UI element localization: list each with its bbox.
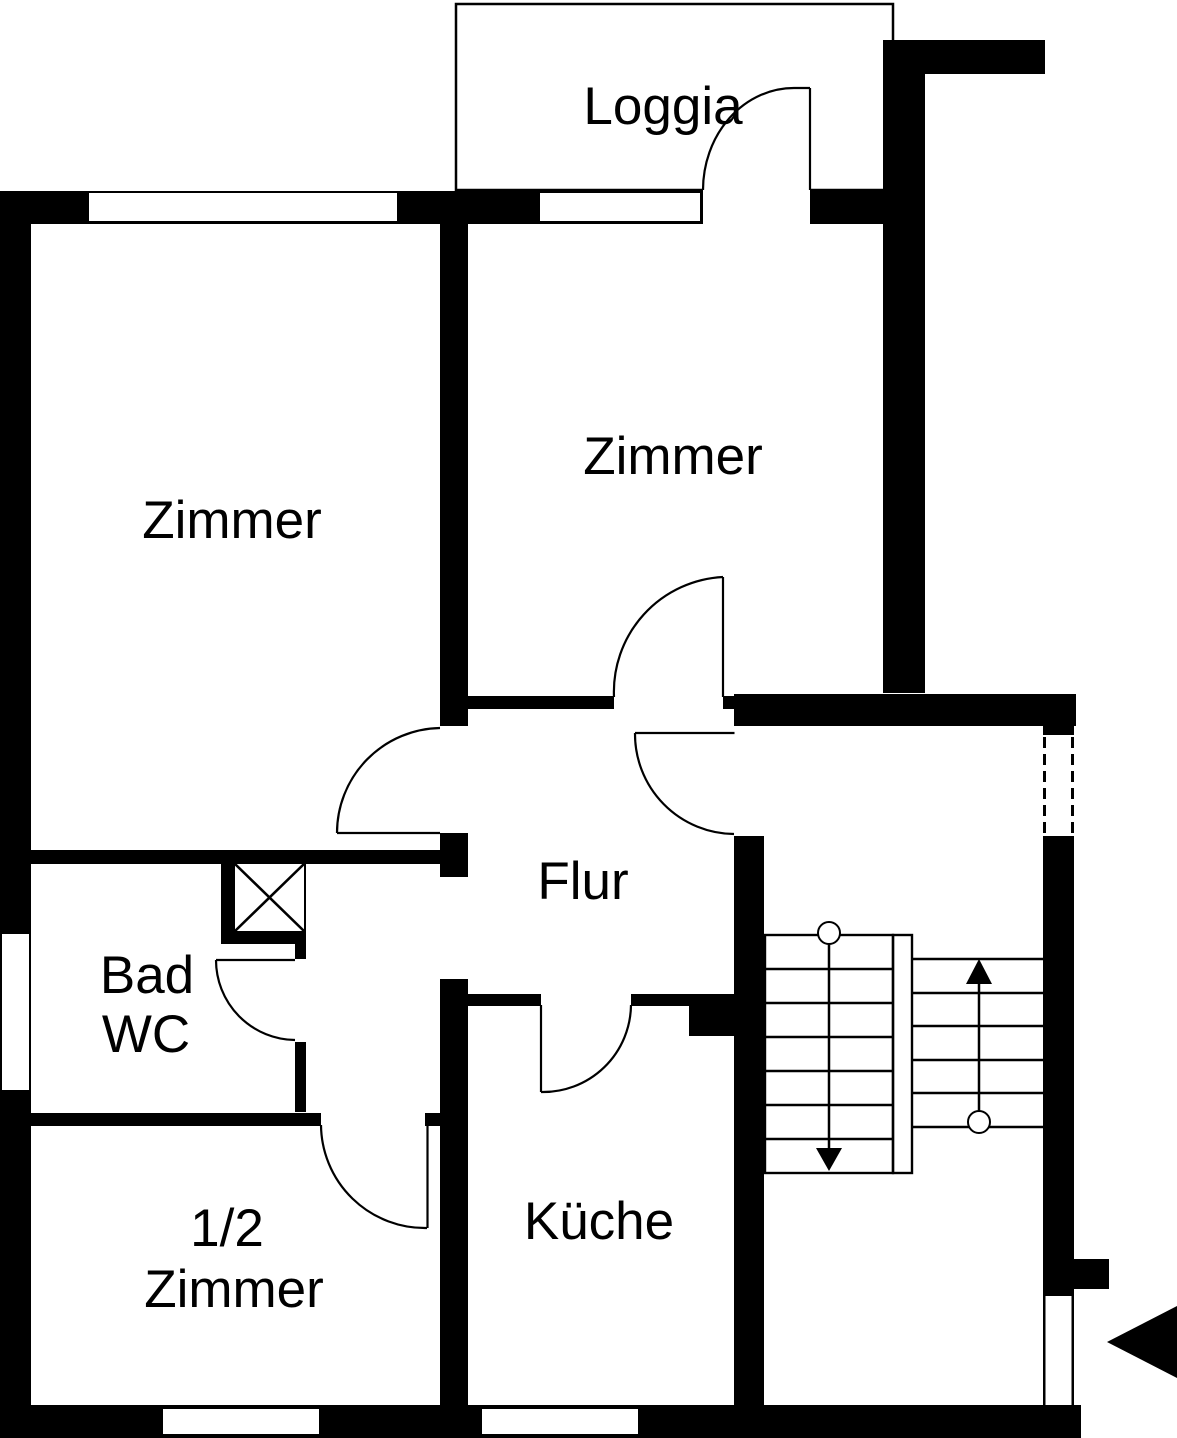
svg-text:Loggia: Loggia <box>583 77 743 136</box>
svg-text:Zimmer: Zimmer <box>583 427 763 486</box>
svg-text:WC: WC <box>102 1005 190 1064</box>
svg-text:Bad: Bad <box>100 946 194 1005</box>
svg-text:1/2: 1/2 <box>190 1199 264 1258</box>
svg-text:Zimmer: Zimmer <box>144 1260 324 1319</box>
svg-text:Zimmer: Zimmer <box>142 491 322 550</box>
svg-text:Flur: Flur <box>537 852 628 911</box>
svg-text:Küche: Küche <box>524 1192 674 1251</box>
